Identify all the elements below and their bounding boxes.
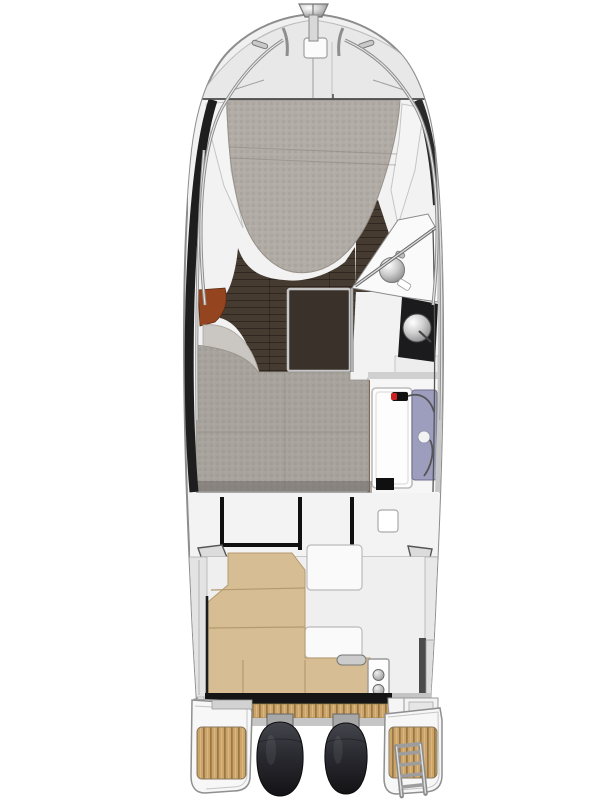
port-platform-teak bbox=[197, 727, 246, 779]
ladder-top-bar bbox=[396, 744, 420, 747]
shower-tray bbox=[372, 388, 412, 488]
stern bbox=[191, 698, 442, 796]
bench-grab-handle bbox=[337, 655, 366, 665]
outboard-engine-port bbox=[257, 722, 303, 796]
dinette-table bbox=[288, 289, 350, 371]
engine-starboard-highlight bbox=[334, 736, 343, 764]
engine-port-highlight bbox=[266, 735, 276, 765]
boat-plan-canvas: Motor boat deck and interior layout plan… bbox=[0, 0, 601, 805]
starboard-swim-platform bbox=[384, 698, 442, 796]
head-step-strip bbox=[368, 372, 440, 379]
anchor-roller-stem bbox=[309, 15, 318, 41]
ladder-rung-2 bbox=[398, 763, 422, 766]
ladder-rung-4 bbox=[401, 785, 425, 788]
roof-hatch bbox=[376, 478, 394, 490]
cockpit-storage-box-upper bbox=[307, 545, 362, 590]
ladder-rung-3 bbox=[400, 774, 424, 777]
shower-faucet-red-cap bbox=[391, 393, 397, 400]
door-knob bbox=[418, 431, 430, 443]
starboard-gate-post bbox=[419, 638, 426, 698]
berth-shade-band bbox=[196, 481, 372, 493]
interior bbox=[187, 20, 443, 704]
boat-plan-svg: Motor boat deck and interior layout plan… bbox=[0, 0, 601, 805]
ladder-rung-1 bbox=[397, 752, 421, 755]
port-swim-platform bbox=[191, 700, 252, 793]
helm-seat-box bbox=[378, 510, 398, 532]
stern-module-knob-top bbox=[373, 670, 384, 681]
port-platform-connector bbox=[212, 700, 252, 709]
outboard-engine-starboard bbox=[325, 723, 367, 794]
cockpit-storage-box-lower bbox=[305, 627, 362, 658]
